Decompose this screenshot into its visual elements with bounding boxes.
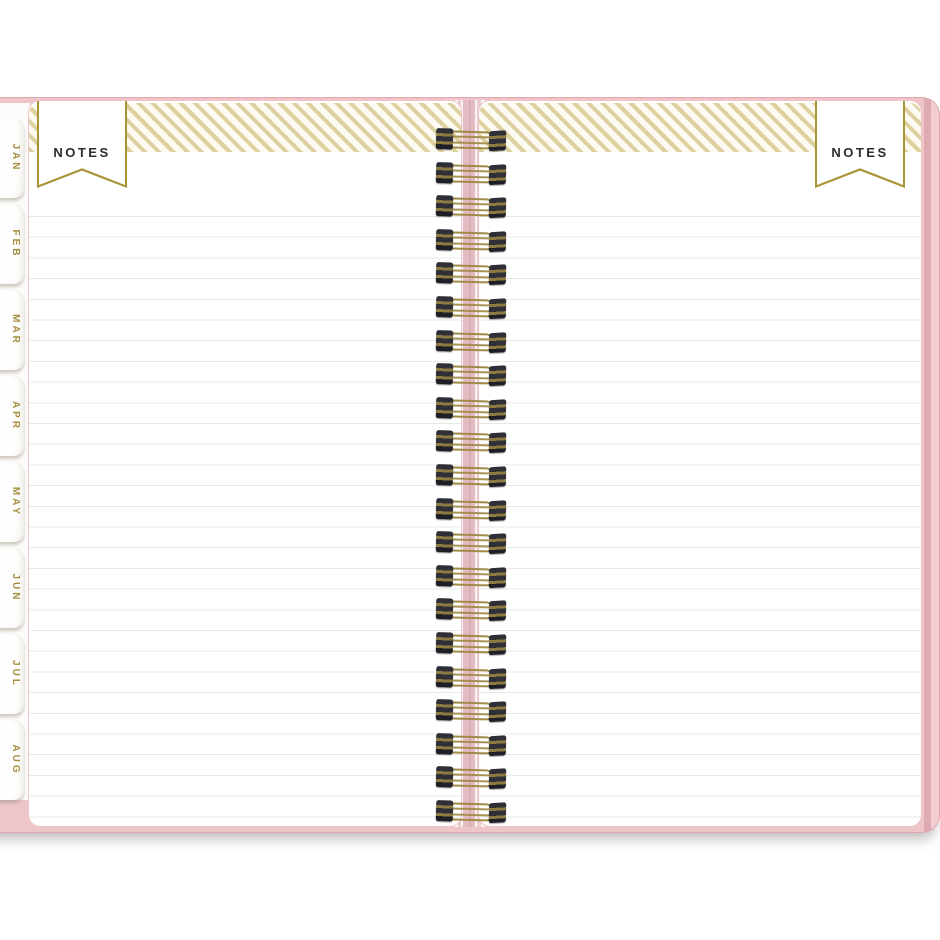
coil-clip-left [436,699,454,720]
coil-clip-right [489,466,507,487]
coil-clip-left [436,464,454,485]
ruled-lines [29,216,461,820]
coil-clip-right [489,735,507,756]
coil-clip-right [489,197,507,218]
coil-clip-left [436,162,454,183]
spiral-coil [436,732,507,758]
ruled-lines [479,216,921,820]
left-page [28,100,462,827]
spiral-coil [436,194,507,220]
coil-clip-right [489,567,507,588]
spiral-coil [436,329,507,355]
spiral-coil [436,698,507,724]
month-tab-label: APR [10,401,21,431]
month-tab-strip: JAN FEB MAR APR MAY JUN JUL AUG [0,103,30,800]
spiral-coil [436,127,507,153]
coil-clip-right [489,433,507,454]
month-tab-aug: AUG [0,720,24,800]
coil-clip-right [489,701,507,722]
spiral-coil [436,295,507,321]
month-tab-label: AUG [10,744,21,775]
coil-clip-left [436,430,454,451]
month-tab-may: MAY [0,462,24,542]
right-page [478,100,922,827]
month-tab-apr: APR [0,376,24,456]
coil-clip-right [489,298,507,319]
spiral-coil [436,497,507,523]
coil-clip-right [489,769,507,790]
coil-clip-right [489,231,507,252]
coil-clip-right [489,164,507,185]
coil-clip-right [489,130,507,151]
coil-clip-right [489,332,507,353]
spiral-coil [436,799,507,825]
coil-clip-left [436,565,454,586]
spiral-coil [436,161,507,187]
month-tab-feb: FEB [0,204,24,284]
coil-clip-left [436,195,454,216]
coil-clip-left [436,262,454,283]
coil-clip-left [436,397,454,418]
coil-clip-right [489,365,507,386]
month-tab-label: JUN [10,573,21,602]
coil-clip-left [436,766,454,787]
coil-clip-left [436,128,454,149]
coil-clip-left [436,598,454,619]
month-tab-label: MAY [10,487,21,517]
spiral-coil [436,597,507,623]
coil-clip-right [489,500,507,521]
spiral-coil [436,261,507,287]
spiral-coil [436,362,507,388]
month-tab-mar: MAR [0,290,24,370]
month-tab-label: MAR [10,314,21,346]
coil-clip-right [489,399,507,420]
month-tab-label: JAN [10,143,21,172]
coil-clip-right [489,265,507,286]
spiral-coil [436,530,507,556]
coil-clip-left [436,498,454,519]
month-tab-jan: JAN [0,118,24,198]
spiral-coil [436,463,507,489]
coil-clip-left [436,363,454,384]
coil-clip-left [436,632,454,653]
spiral-coil [436,765,507,791]
coil-clip-left [436,229,454,250]
month-tab-label: FEB [10,230,21,259]
coil-clip-right [489,533,507,554]
spiral-coil [436,564,507,590]
coil-clip-left [436,733,454,754]
coil-clip-right [489,668,507,689]
spiral-coil [436,396,507,422]
coil-clip-right [489,601,507,622]
coil-clip-right [489,802,507,823]
notes-banner-label: NOTES [53,145,110,160]
month-tab-jun: JUN [0,548,24,628]
notes-banner-label: NOTES [831,145,888,160]
coil-clip-left [436,666,454,687]
spiral-coil [436,631,507,657]
coil-clip-left [436,800,454,821]
coil-clip-left [436,330,454,351]
coil-clip-left [436,531,454,552]
coil-clip-right [489,634,507,655]
spiral-coil [436,665,507,691]
month-tab-label: JUL [10,660,21,688]
notebook-product-photo: JAN FEB MAR APR MAY JUN JUL AUG NOTES NO… [0,0,940,940]
spiral-coil [436,429,507,455]
coil-clip-left [436,296,454,317]
month-tab-jul: JUL [0,634,24,714]
spiral-coil [436,228,507,254]
